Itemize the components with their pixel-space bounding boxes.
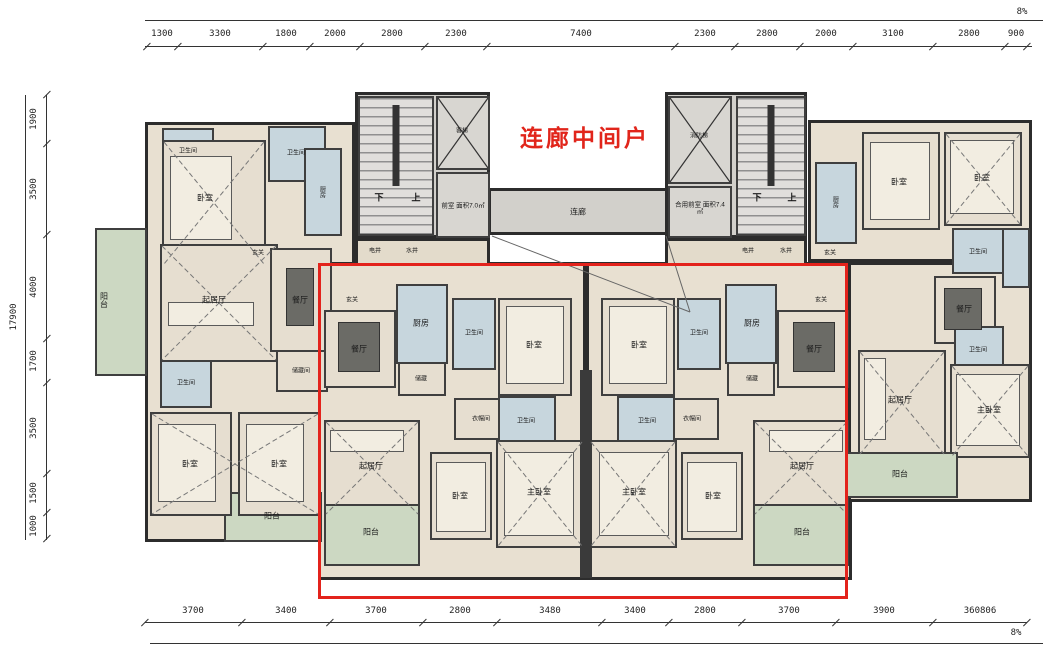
- stair-up-label: 上: [787, 191, 796, 204]
- dim-label: 2800: [381, 29, 403, 39]
- dim-label: 3400: [624, 606, 646, 616]
- room-label-balcony: 阳台: [892, 469, 908, 480]
- elevator-lobby-left-label: 前室 面积7.0㎡: [437, 202, 489, 209]
- floor-plan-canvas: 阳台 卫生间 卧室 卫生间 厨房 玄关 起居厅 餐厅 储藏间 卫生间 卧室 卧室…: [0, 0, 1055, 667]
- elevator-lobby-right-label: 合用前室 面积7.4㎡: [674, 202, 726, 217]
- room-label-bedroom: 卧室: [182, 459, 198, 470]
- dim-label: 3400: [275, 606, 297, 616]
- elevator-left-label: 客梯: [456, 126, 468, 135]
- dim-label: 3500: [29, 178, 39, 200]
- dim-label: 3700: [365, 606, 387, 616]
- room-label-bathroom: 卫生间: [177, 378, 195, 387]
- room-label-bedroom: 卧室: [271, 459, 287, 470]
- room-label-bathroom: 卫生间: [179, 146, 197, 155]
- room-label-bedroom: 卧室: [974, 173, 990, 184]
- room-label-bathroom: 卫生间: [969, 247, 987, 256]
- room-label-foyer: 玄关: [824, 248, 836, 257]
- dim-label: 3500: [29, 417, 39, 439]
- dim-label: 2300: [694, 29, 716, 39]
- annotation-title: 连廊中间户: [520, 119, 650, 153]
- dim-label: 1000: [29, 515, 39, 537]
- stair-up-label: 上: [411, 191, 420, 204]
- dim-label: 2800: [694, 606, 716, 616]
- stair-down-label: 下: [374, 191, 383, 204]
- dim-label: 3700: [182, 606, 204, 616]
- dim-label: 4000: [29, 276, 39, 298]
- room-label-bedroom: 卧室: [891, 177, 907, 188]
- room-label-master-bedroom: 主卧室: [977, 405, 1001, 416]
- furniture-sofa: [168, 302, 254, 326]
- staircase-left: [358, 96, 434, 236]
- dim-label: 3480: [539, 606, 561, 616]
- shaft-label: 电井: [369, 246, 381, 255]
- room-label-kitchen: 厨房: [318, 186, 327, 198]
- room-label-living: 起居厅: [202, 295, 226, 306]
- stair-divider: [768, 105, 775, 187]
- stair-divider: [393, 105, 400, 187]
- dim-label: 900: [1008, 29, 1024, 39]
- dim-label: 360806: [964, 606, 997, 616]
- dim-total-label: 17900: [9, 303, 19, 330]
- room-label-living: 起居厅: [888, 395, 912, 406]
- room-label-bathroom: 卫生间: [287, 148, 305, 157]
- dim-label: 3700: [778, 606, 800, 616]
- room-label-balcony: 阳台: [99, 292, 110, 308]
- dim-label: 3900: [873, 606, 895, 616]
- room-label-storage: 储藏间: [292, 366, 310, 375]
- dim-label: 2800: [449, 606, 471, 616]
- highlight-box-middle-units: [318, 263, 848, 599]
- dim-outer-line-top: [145, 20, 1043, 21]
- dim-total-line-left: [25, 95, 26, 540]
- room-utility: [1002, 228, 1030, 288]
- dim-corner-mark: 8%: [1011, 628, 1022, 638]
- room-label-foyer: 玄关: [252, 248, 264, 257]
- dim-label: 2800: [958, 29, 980, 39]
- dim-label: 2000: [324, 29, 346, 39]
- room-label-bathroom: 卫生间: [969, 345, 987, 354]
- dim-label: 1700: [29, 350, 39, 372]
- shaft-label: 水井: [406, 246, 418, 255]
- room-label-kitchen: 厨房: [831, 196, 840, 208]
- dim-label: 7400: [570, 29, 592, 39]
- furniture-sofa: [864, 358, 886, 440]
- room-label-dining: 餐厅: [292, 295, 308, 306]
- dim-label: 1900: [29, 108, 39, 130]
- dim-chain-top: [145, 46, 1032, 47]
- shaft-label: 水井: [780, 246, 792, 255]
- elevator-right: [668, 96, 732, 184]
- dim-label: 2000: [815, 29, 837, 39]
- room-label-balcony: 阳台: [264, 511, 280, 522]
- staircase-right: [736, 96, 806, 236]
- room-label-dining: 餐厅: [956, 304, 972, 315]
- dim-chain-left: [46, 95, 47, 540]
- dim-chain-bottom: [145, 622, 1027, 623]
- dim-label: 3300: [209, 29, 231, 39]
- dim-label: 1500: [29, 482, 39, 504]
- dim-label: 1800: [275, 29, 297, 39]
- stair-down-label: 下: [752, 191, 761, 204]
- dim-corner-mark: 8%: [1017, 7, 1028, 17]
- room-label-bedroom: 卧室: [197, 193, 213, 204]
- dim-label: 2300: [445, 29, 467, 39]
- shaft-label: 电井: [742, 246, 754, 255]
- dim-label: 2800: [756, 29, 778, 39]
- dim-outer-line-bottom: [150, 643, 1043, 644]
- corridor-label: 连廊: [570, 207, 586, 218]
- dim-label: 3100: [882, 29, 904, 39]
- dim-label: 1300: [151, 29, 173, 39]
- elevator-right-label: 消防梯: [690, 131, 708, 140]
